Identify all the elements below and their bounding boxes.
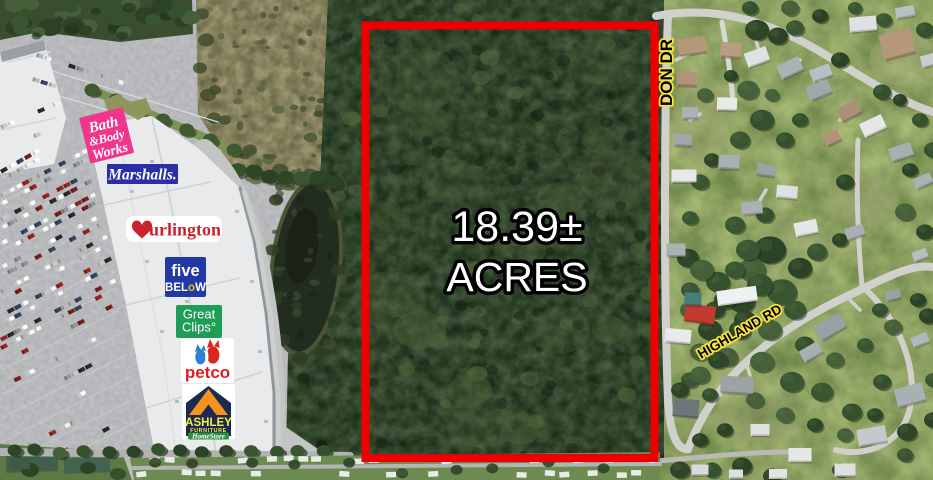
- svg-text:BELoW: BELoW: [165, 282, 206, 294]
- svg-text:HomeStore: HomeStore: [191, 433, 225, 441]
- svg-text:DON DR: DON DR: [657, 39, 676, 106]
- svg-text:Marshalls.: Marshalls.: [107, 167, 177, 184]
- svg-text:petco: petco: [185, 363, 230, 382]
- svg-text:Clips°: Clips°: [182, 320, 216, 335]
- svg-text:five: five: [171, 262, 199, 280]
- svg-text:urlington: urlington: [149, 220, 221, 240]
- svg-text:18.39±: 18.39±: [451, 203, 582, 251]
- svg-text:ACRES: ACRES: [446, 254, 587, 300]
